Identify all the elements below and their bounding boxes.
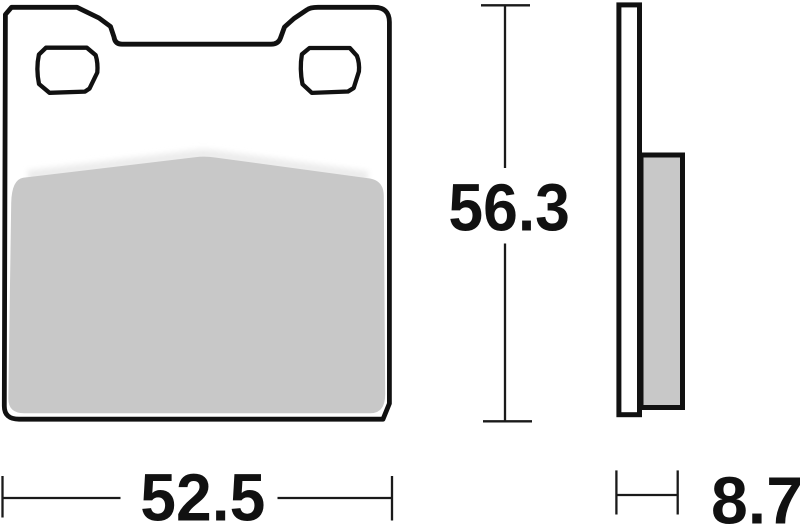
svg-text:8.7: 8.7	[711, 464, 800, 524]
svg-text:52.5: 52.5	[140, 461, 265, 524]
svg-text:56.3: 56.3	[448, 171, 570, 246]
